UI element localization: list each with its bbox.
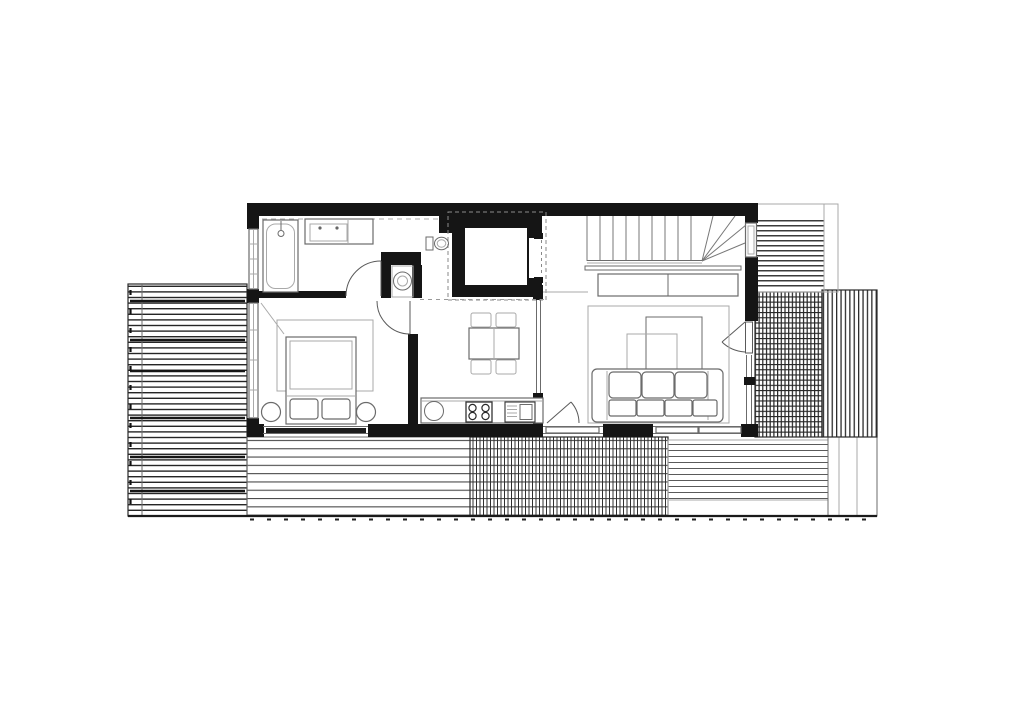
living-south-door-glazing: [543, 427, 603, 434]
cooktop: [466, 402, 492, 422]
sink-unit: [505, 402, 535, 422]
wall-south-b: [368, 424, 543, 437]
glazing-mullion: [744, 377, 755, 385]
seat-cushion: [693, 400, 717, 416]
floor-plan-drawing: [0, 0, 1018, 720]
wall-east-top: [745, 203, 758, 223]
bathroom-window: [249, 229, 258, 289]
wall-bedroom-east: [408, 334, 418, 424]
back-cushion: [642, 372, 674, 398]
left-deck: [128, 284, 247, 516]
wall-south-corner: [741, 424, 758, 437]
sofa: [592, 369, 723, 422]
floor-plan-screenshot: [0, 0, 1018, 720]
back-cushion: [675, 372, 707, 398]
vanity: [305, 219, 373, 244]
back-cushion: [609, 372, 641, 398]
wall-closet-top: [381, 252, 421, 265]
under-stair-cabinet: [598, 274, 738, 296]
pillow-left: [290, 399, 318, 419]
bed: [286, 337, 356, 424]
seat-cushion: [665, 400, 692, 416]
bedroom-sliding-door: [263, 427, 368, 434]
wall-east-mid: [745, 257, 758, 321]
sliding-panel: [266, 428, 366, 433]
bottom-deck-east: [668, 440, 828, 516]
bathtub: [263, 220, 298, 292]
elevator-shaft: [448, 212, 546, 300]
faucet: [318, 226, 321, 229]
wall-north: [247, 203, 758, 216]
right-deck-grating: [755, 292, 822, 437]
wall-west-top: [247, 203, 259, 229]
seat-cushion: [609, 400, 636, 416]
bottom-deck-corner: [828, 437, 877, 516]
pillow-right: [322, 399, 350, 419]
round-stool-left: [262, 403, 281, 422]
seat-cushion: [637, 400, 664, 416]
round-stool-right: [357, 403, 376, 422]
living-east-glazing: [744, 355, 755, 424]
wall-south-pier: [603, 424, 653, 437]
wall-south-a: [247, 424, 264, 437]
right-deck-slats: [822, 290, 877, 437]
faucet: [335, 226, 338, 229]
wall-closet-left: [381, 265, 391, 298]
wall-wc-stub: [439, 216, 452, 233]
stair-window: [746, 223, 757, 257]
wall-west-pier: [247, 289, 259, 303]
living-south-sliding-glazing: [653, 427, 741, 434]
bottom-deck-west: [247, 437, 470, 516]
top-right-deck: [755, 204, 838, 292]
bottom-deck-center: [470, 437, 668, 516]
kitchen-counter: [421, 398, 543, 423]
